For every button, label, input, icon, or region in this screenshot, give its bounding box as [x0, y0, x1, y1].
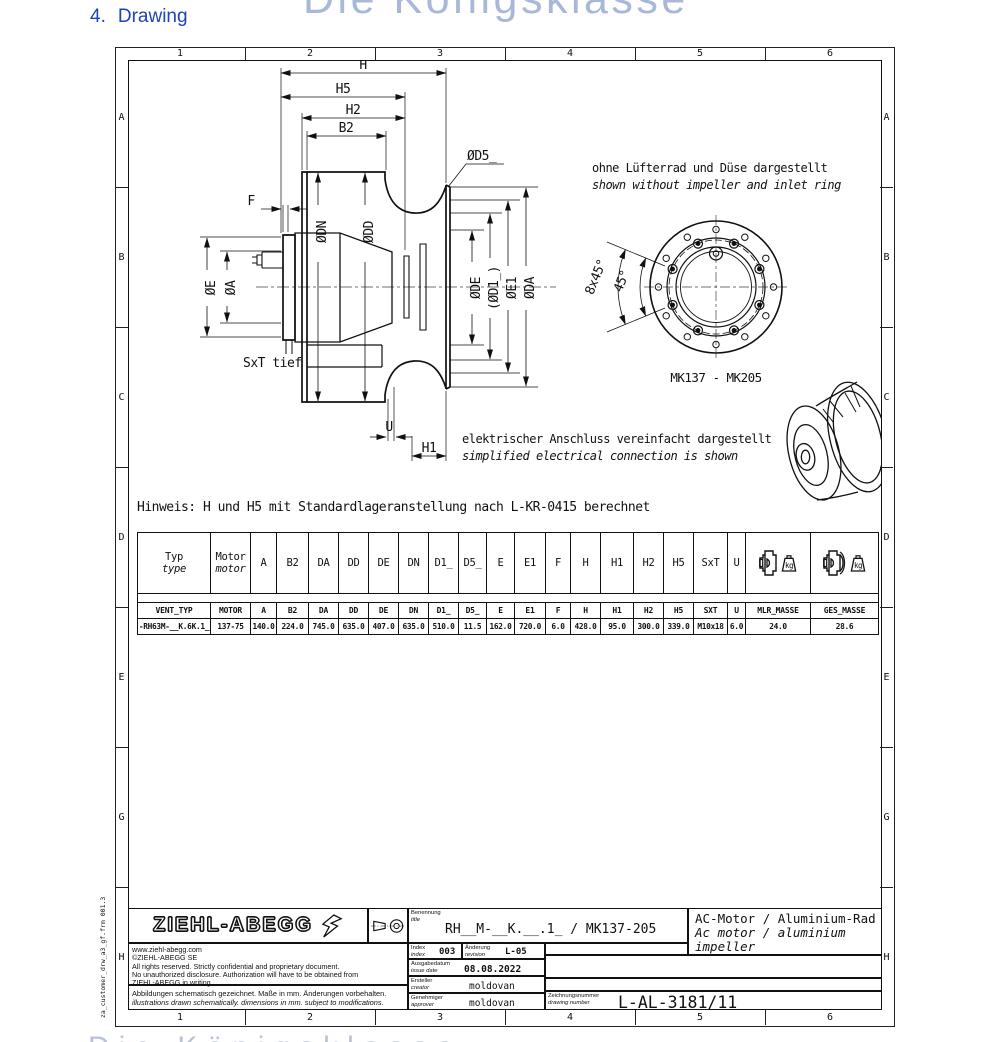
dimension-labels: H H5 H2 B2 ØD5_ F ØDN ØDD ØE ØA ØDE (ØD1…: [204, 60, 538, 456]
approver-cell: Genehmigerapprover moldovan: [408, 993, 545, 1010]
table-header-row: Typ type Motor motor AB2 DADD DEDN D1_D5…: [138, 533, 879, 594]
revision-strip-1: [545, 955, 882, 978]
heading-number: 4.: [90, 6, 106, 28]
svg-text:kg: kg: [785, 561, 793, 570]
note-electrical-de: elektrischer Anschluss vereinfacht darge…: [462, 432, 772, 446]
title-block: ZIEHL-ABEGG Benennungtitle RH__M-__K.__.…: [128, 908, 882, 1010]
table-db-row: VENT_TYPMOTORA B2DADD DEDND1_ D5_EE1 FHH…: [138, 603, 879, 619]
title-cell: Benennungtitle RH__M-__K.__.1_ / MK137-2…: [408, 908, 688, 943]
dim-sxt: SxT tief: [243, 356, 302, 371]
col-label-top-3: 3: [375, 47, 505, 60]
dimension-lines: [207, 73, 526, 456]
projection-symbol-cell: [368, 908, 408, 943]
schematic-note-cell: Abbildungen schematisch gezeichnet. Maße…: [128, 985, 408, 1010]
schematic-note-de: Abbildungen schematisch gezeichnet. Maße…: [132, 989, 407, 998]
col-label-top-5: 5: [635, 47, 765, 60]
dim-d5: ØD5_: [467, 149, 497, 164]
schematic-note-en: illustrations drawn schematically. dimen…: [132, 998, 407, 1007]
projection-symbol-icon: [370, 916, 406, 936]
technical-drawing: H H5 H2 B2 ØD5_ F ØDN ØDD ØE ØA ØDE (ØD1…: [128, 60, 882, 510]
kg-weight-icon: kg: [781, 555, 797, 572]
product-en: Ac motor / aluminium impeller: [695, 926, 881, 954]
dim-h5: H5: [336, 82, 351, 97]
revision-cell: Änderungrevision L-05: [462, 943, 545, 959]
drawing-number-value: L-AL-3181/11: [618, 993, 737, 1012]
page: Die Königsklasse Die Königsklasse 4. Dra…: [0, 0, 1000, 1042]
dim-de: ØDE: [469, 277, 484, 299]
kg-weight-icon: kg: [850, 555, 866, 572]
dim-h: H: [359, 60, 366, 73]
drawing-notes: ohne Lüfterrad und Düse dargestellt show…: [462, 161, 841, 463]
za-logo-icon: [321, 913, 343, 939]
dim-a: ØA: [224, 280, 239, 295]
drawing-number-cell: Zeichnungsnummerdrawing number L-AL-3181…: [545, 991, 882, 1010]
ziehl-abegg-logo: ZIEHL-ABEGG: [153, 914, 313, 937]
form-reference: za_customer_drw_a3_gf.frm 001.3: [99, 878, 107, 1018]
revision-strip-2: [545, 978, 882, 991]
motor-impeller-icon: [823, 550, 848, 576]
col-label-bottom-6: 6: [765, 1010, 895, 1025]
dim-f: F: [247, 194, 255, 209]
creator-value: moldovan: [469, 981, 515, 992]
dim-e1: ØE1: [505, 277, 520, 299]
dim-da: ØDA: [523, 276, 538, 299]
dim-dd: ØDD: [362, 220, 377, 243]
index-value: 003: [439, 947, 455, 957]
approver-value: moldovan: [469, 998, 515, 1009]
col-label-top-1: 1: [115, 47, 245, 60]
front-view-caption: MK137 - MK205: [670, 370, 761, 385]
product-cell: AC-Motor / Aluminium-Rad Ac motor / alum…: [688, 908, 882, 955]
angle-45-label: 45°: [611, 268, 633, 294]
table-data-row: -RH63M-__K.6K.1_137-75140.0 224.0745.063…: [138, 619, 879, 635]
copyright-cell: www.ziehl-abegg.com ©ZIEHL-ABEGG SE All …: [128, 943, 408, 985]
col-label-bottom-1: 1: [115, 1010, 245, 1025]
index-cell: Indexindex 003: [408, 943, 462, 959]
row-label-left-d: D: [115, 467, 128, 607]
row-label-left-e: E: [115, 607, 128, 747]
issue-date-cell: Ausgabedatumissue date 08.08.2022: [408, 959, 545, 976]
dim-h2: H2: [346, 103, 361, 118]
note-impeller-de: ohne Lüfterrad und Düse dargestellt: [592, 161, 828, 175]
logo-cell: ZIEHL-ABEGG: [128, 908, 368, 943]
hint-note: Hinweis: H und H5 mit Standardlageranste…: [137, 500, 650, 515]
col-typ: Typ: [165, 551, 183, 563]
col-label-top-6: 6: [765, 47, 895, 60]
dim-e: ØE: [204, 281, 219, 296]
note-electrical-en: simplified electrical connection is show…: [462, 449, 738, 463]
row-label-right-g: G: [880, 747, 893, 887]
row-label-left-c: C: [115, 327, 128, 467]
col-label-bottom-4: 4: [505, 1010, 635, 1025]
empty-cell: [545, 943, 688, 955]
col-label-bottom-5: 5: [635, 1010, 765, 1025]
col-label-bottom-2: 2: [245, 1010, 375, 1025]
issue-date-value: 08.08.2022: [464, 964, 521, 975]
impeller-3d-sketch: [778, 376, 882, 506]
revision-value: L-05: [505, 947, 527, 957]
watermark-bottom: Die Königsklasse: [88, 1031, 462, 1042]
table-gap-row: [138, 594, 879, 603]
drawing-title-value: RH__M-__K.__.1_ / MK137-205: [445, 922, 656, 937]
svg-text:kg: kg: [854, 561, 862, 570]
angle-8x45-label: 8x45°: [583, 257, 611, 297]
heading-text: Drawing: [118, 6, 188, 28]
dimension-table: Typ type Motor motor AB2 DADD DEDN D1_D5…: [137, 532, 879, 635]
front-view: 8x45° 45° MK137 - MK205: [583, 215, 788, 385]
col-label-top-2: 2: [245, 47, 375, 60]
dim-dn: ØDN: [315, 221, 330, 243]
watermark-top: Die Königsklasse: [303, 0, 689, 24]
page-title: 4. Drawing: [90, 6, 188, 28]
product-de: AC-Motor / Aluminium-Rad: [695, 912, 881, 926]
row-label-right-e: E: [880, 607, 893, 747]
row-label-left-a: A: [115, 47, 128, 187]
col-label-bottom-3: 3: [375, 1010, 505, 1025]
dim-b2: B2: [339, 121, 354, 136]
row-label-left-h: H: [115, 887, 128, 1027]
dim-h1: H1: [422, 441, 437, 456]
col-motor: Motor: [215, 551, 245, 563]
dim-d1: (ØD1_): [487, 266, 502, 310]
dim-u: U: [385, 420, 392, 435]
note-impeller-en: shown without impeller and inlet ring: [592, 178, 841, 192]
col-label-top-4: 4: [505, 47, 635, 60]
row-label-left-b: B: [115, 187, 128, 327]
motor-icon: [759, 550, 779, 576]
creator-cell: Erstellercreator moldovan: [408, 976, 545, 993]
row-label-left-g: G: [115, 747, 128, 887]
